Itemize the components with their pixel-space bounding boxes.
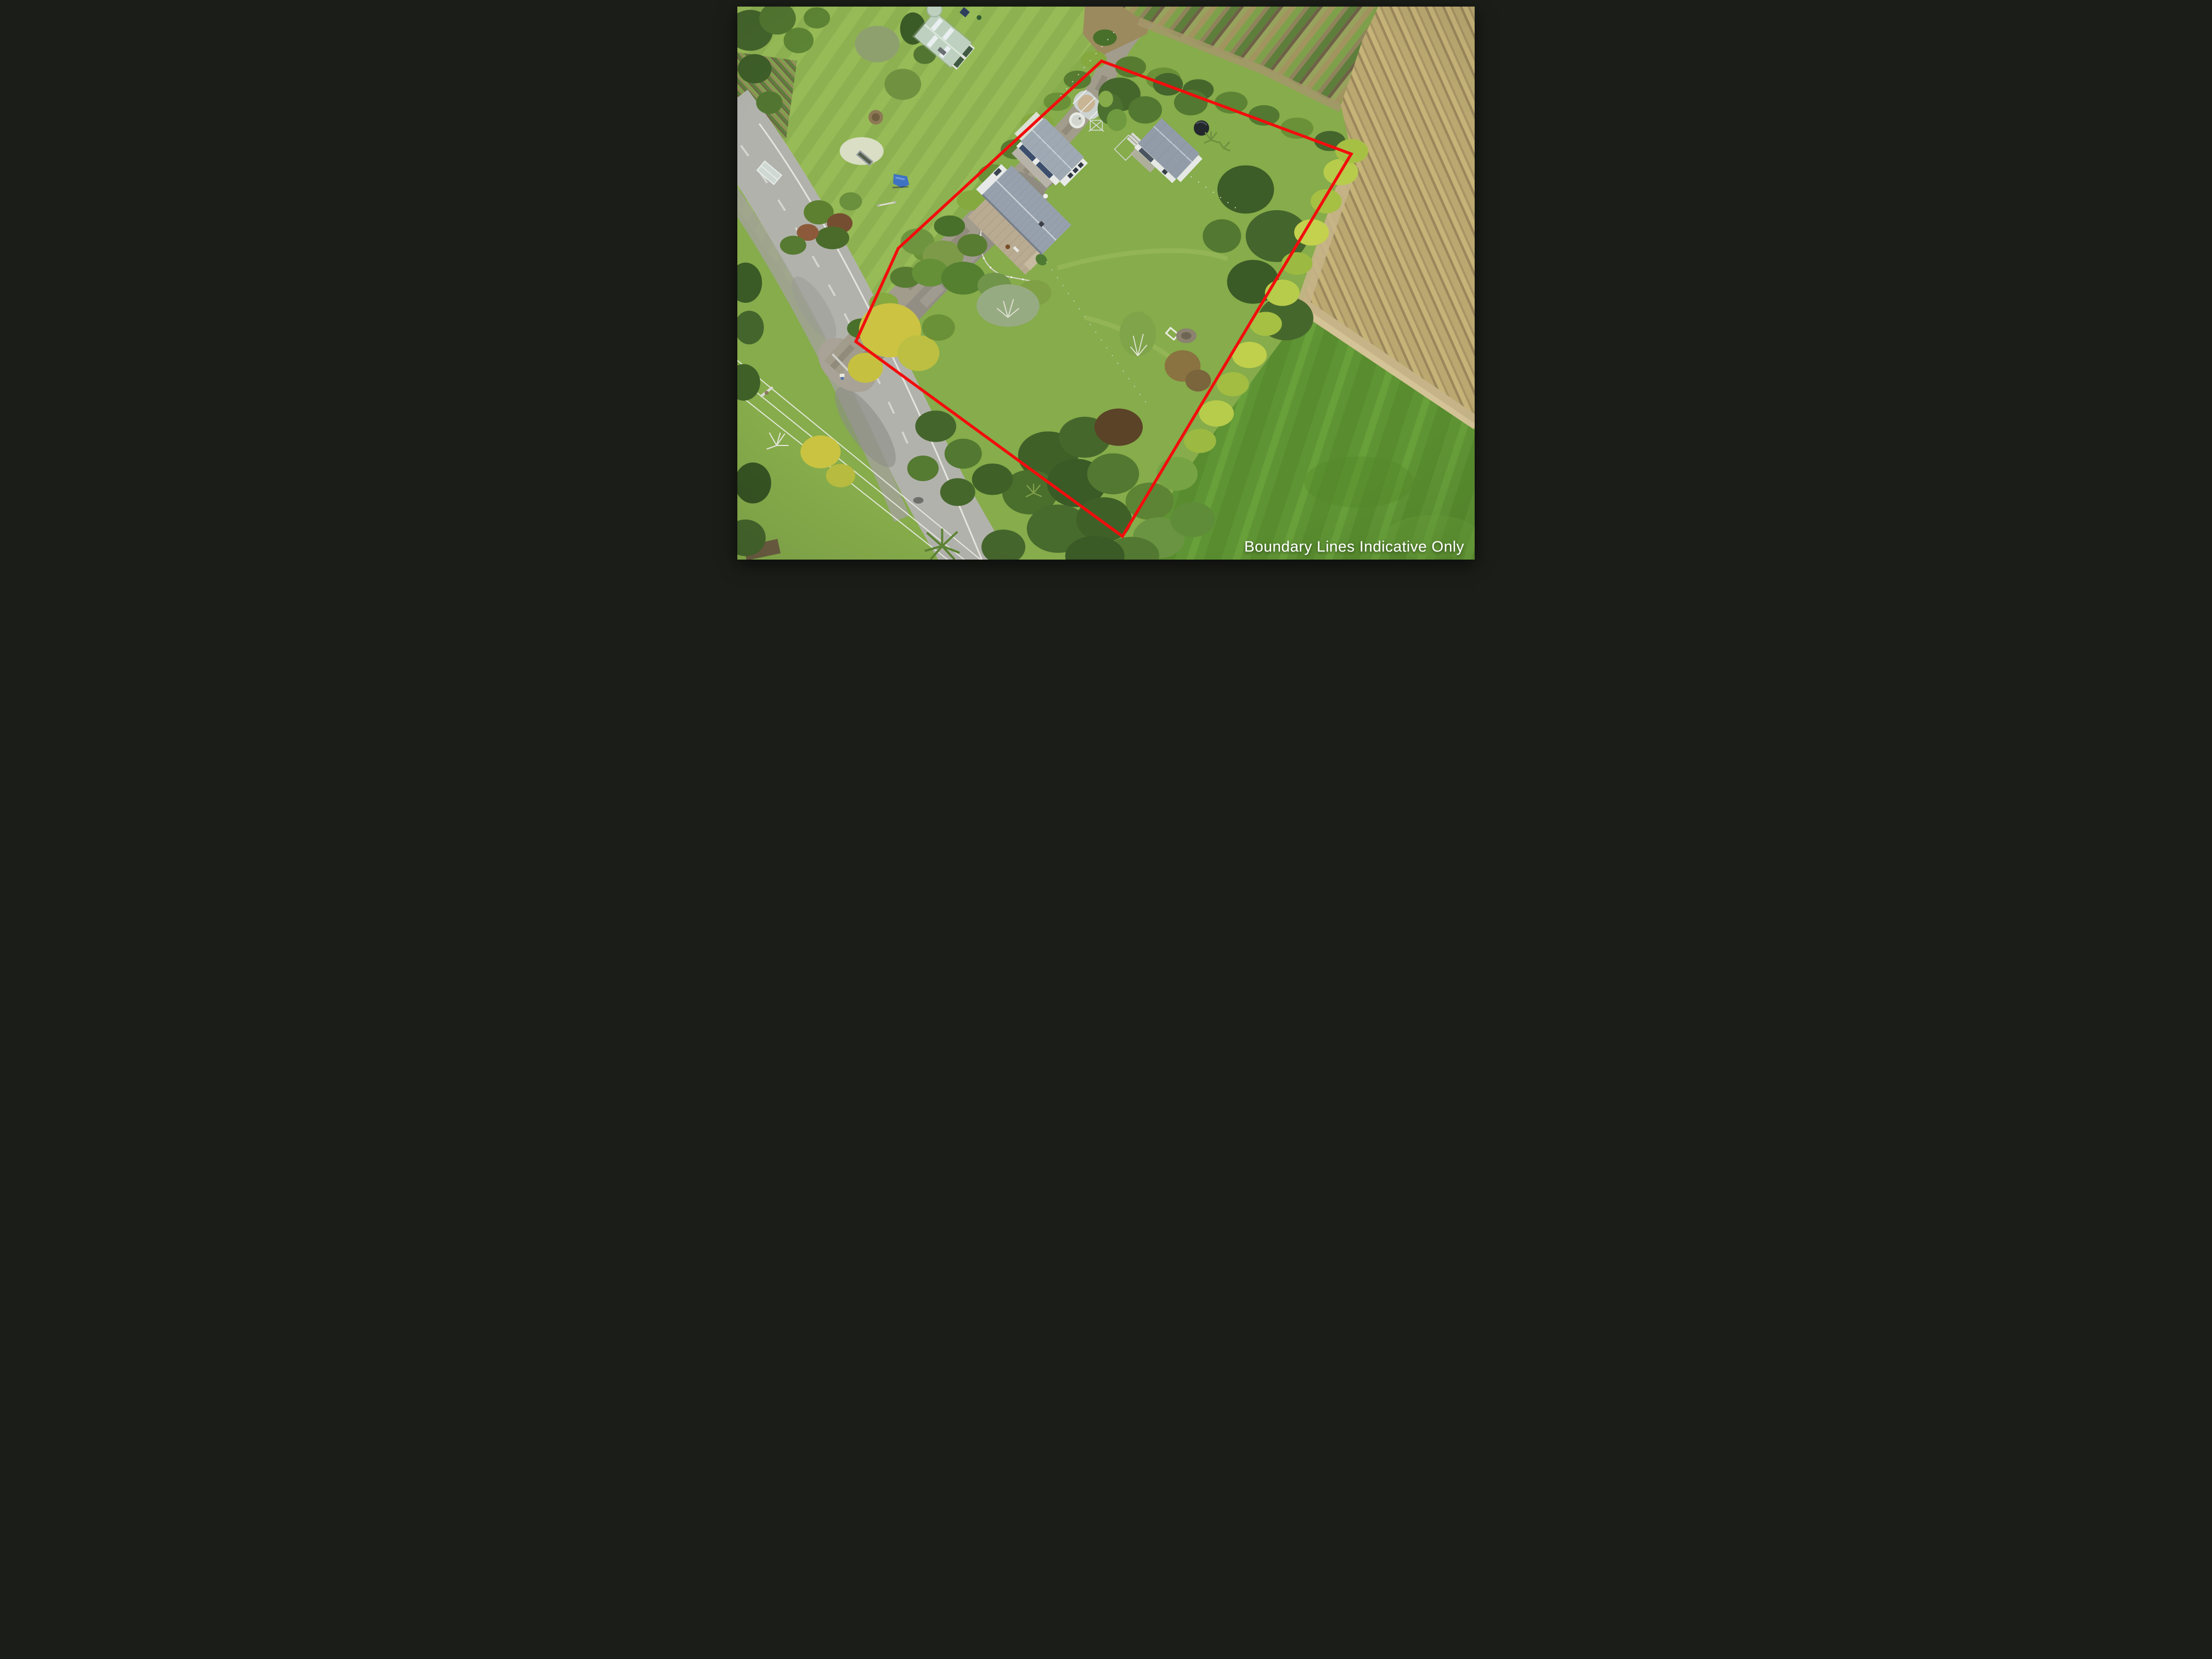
screenshot-root: Boundary Lines Indicative Only [737, 7, 1475, 560]
aerial-photo: Boundary Lines Indicative Only [737, 7, 1475, 560]
caption-text: Boundary Lines Indicative Only [1244, 538, 1464, 555]
caption-group: Boundary Lines Indicative Only [1244, 538, 1464, 555]
vignette [737, 7, 1475, 560]
